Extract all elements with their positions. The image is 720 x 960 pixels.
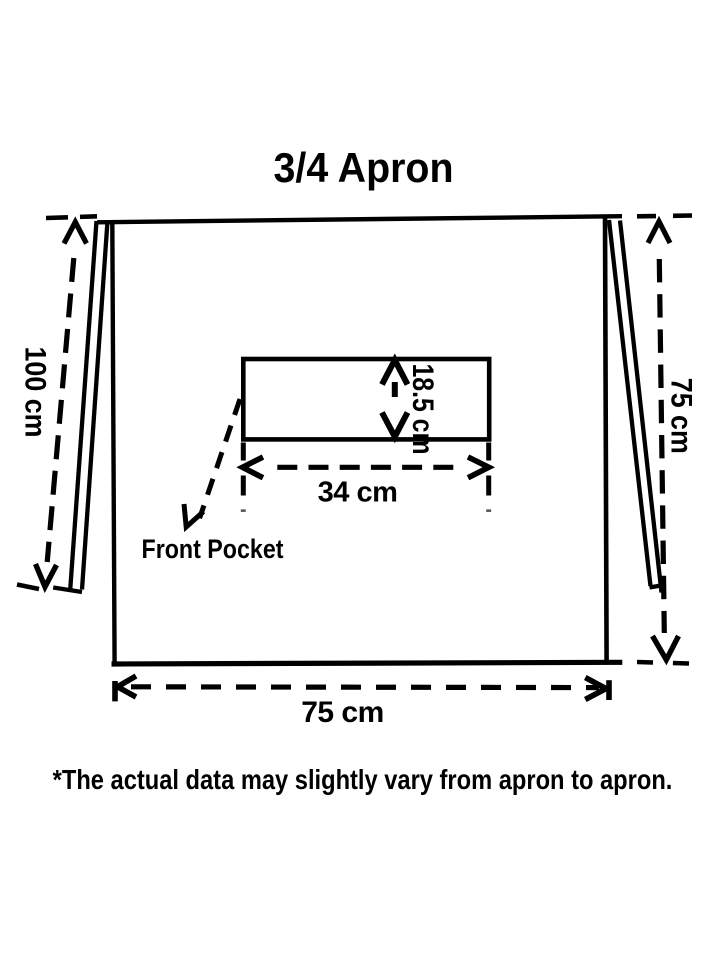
svg-text:18.5 cm: 18.5 cm: [406, 364, 439, 455]
svg-text:*The actual data may slightly: *The actual data may slightly vary from …: [53, 765, 673, 795]
svg-text:100 cm: 100 cm: [19, 347, 52, 438]
svg-text:75 cm: 75 cm: [665, 378, 698, 454]
svg-text:Front Pocket: Front Pocket: [142, 534, 284, 564]
svg-text:34 cm: 34 cm: [318, 477, 398, 509]
svg-text:75 cm: 75 cm: [301, 696, 384, 729]
svg-text:3/4 Apron: 3/4 Apron: [274, 144, 454, 191]
